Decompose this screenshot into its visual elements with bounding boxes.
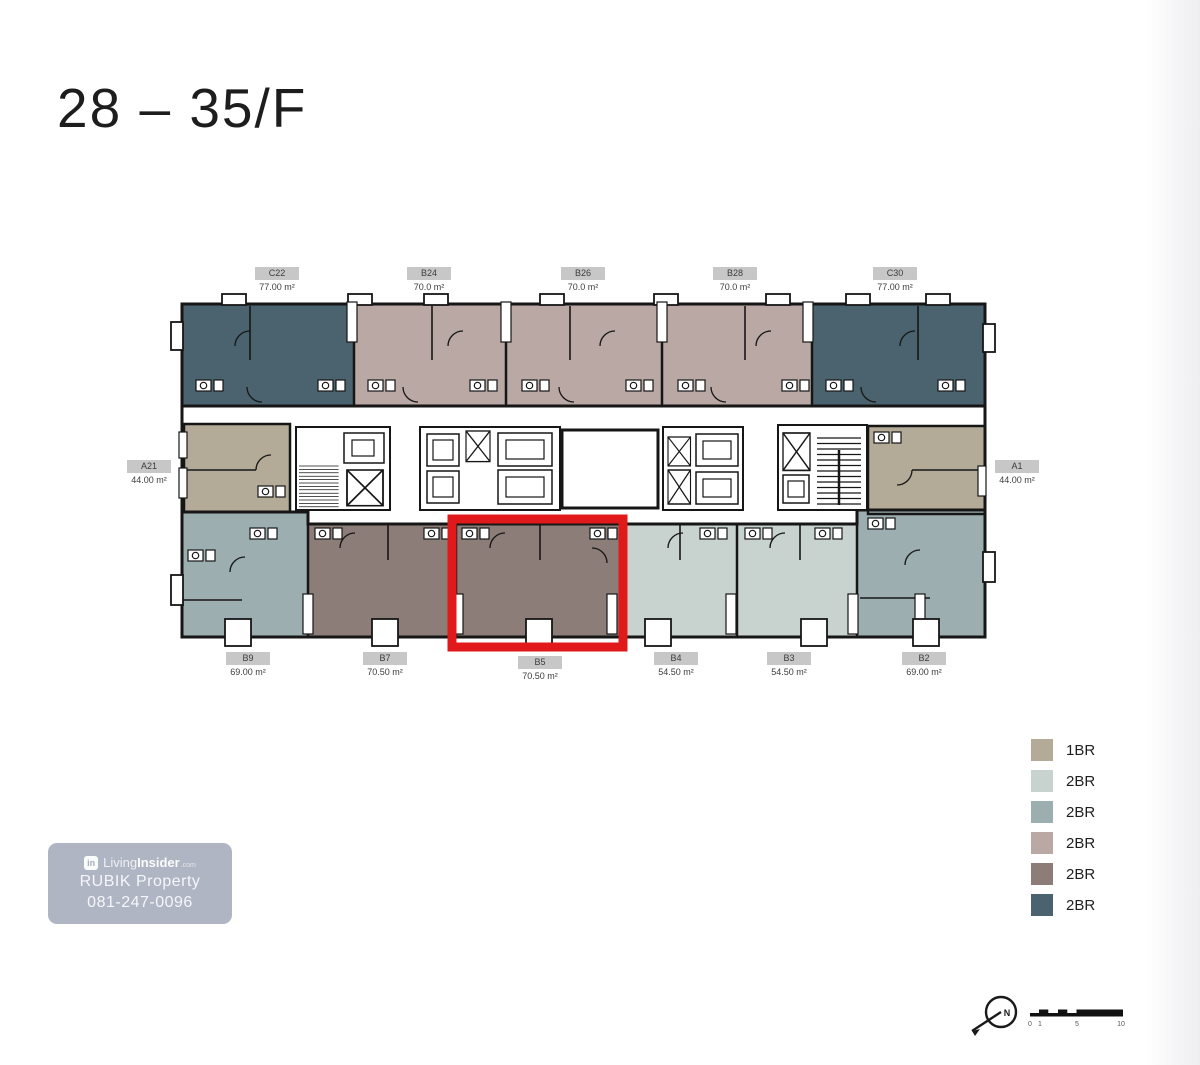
unit-area-text: 70.0 m² <box>561 282 605 292</box>
unit-area-text: 69.00 m² <box>226 667 270 677</box>
unit-label-c22: C22 77.00 m² <box>255 263 299 292</box>
unit-area-text: 77.00 m² <box>255 282 299 292</box>
legend-label: 2BR <box>1066 897 1095 914</box>
unit-id-chip: B26 <box>561 267 605 280</box>
legend-swatch-light <box>1031 770 1053 792</box>
unit-id-chip: B3 <box>767 652 811 665</box>
unit-label-b2: B2 69.00 m² <box>902 648 946 677</box>
unit-label-a1: A1 44.00 m² <box>995 456 1039 485</box>
unit-area-text: 70.0 m² <box>407 282 451 292</box>
unit-label-b28: B28 70.0 m² <box>713 263 757 292</box>
compass-north-label: N <box>1004 1008 1011 1018</box>
watermark: in Living Insider .com RUBIK Property 08… <box>48 843 232 924</box>
legend-row-2br-light: 2BR <box>1031 770 1095 792</box>
unit-label-b3: B3 54.50 m² <box>767 648 811 677</box>
unit-label-b24: B24 70.0 m² <box>407 263 451 292</box>
scale-tick-1: 1 <box>1038 1021 1042 1028</box>
unit-label-b7: B7 70.50 m² <box>363 648 407 677</box>
scale-tick-5: 5 <box>1075 1021 1079 1028</box>
unit-id-chip: C30 <box>873 267 917 280</box>
building-core <box>296 425 867 510</box>
unit-area-text: 70.0 m² <box>713 282 757 292</box>
unit-id-chip: B9 <box>226 652 270 665</box>
legend-row-2br-grayblue: 2BR <box>1031 801 1095 823</box>
unit-label-b5: B5 70.50 m² <box>518 652 562 681</box>
unit-area-text: 54.50 m² <box>767 667 811 677</box>
unit-id-chip: B5 <box>518 656 562 669</box>
legend-row-2br-mauve: 2BR <box>1031 832 1095 854</box>
legend-swatch-grayblue <box>1031 801 1053 823</box>
unit-area-text: 70.50 m² <box>518 671 562 681</box>
unit-region-b3 <box>737 524 857 637</box>
legend-label: 2BR <box>1066 866 1095 883</box>
unit-region-a21 <box>184 424 290 512</box>
livinginsider-logo-icon: in <box>84 856 98 870</box>
legend-label: 2BR <box>1066 773 1095 790</box>
legend-label: 2BR <box>1066 835 1095 852</box>
legend-label: 1BR <box>1066 742 1095 759</box>
unit-id-chip: B4 <box>654 652 698 665</box>
brand-living: Living <box>103 855 137 870</box>
scale-tick-10: 10 <box>1117 1021 1125 1028</box>
legend-row-1br: 1BR <box>1031 739 1095 761</box>
legend-row-2br-slate: 2BR <box>1031 894 1095 916</box>
unit-area-text: 70.50 m² <box>363 667 407 677</box>
scale-tick-0: 0 <box>1028 1021 1032 1028</box>
legend: 1BR 2BR 2BR 2BR 2BR 2BR <box>1031 739 1095 925</box>
unit-area-text: 44.00 m² <box>995 475 1039 485</box>
legend-swatch-slate <box>1031 894 1053 916</box>
brand-tld: .com <box>181 862 196 869</box>
unit-id-chip: A1 <box>995 460 1039 473</box>
unit-label-b4: B4 54.50 m² <box>654 648 698 677</box>
unit-area-text: 54.50 m² <box>654 667 698 677</box>
compass: N <box>972 997 1016 1036</box>
unit-label-b26: B26 70.0 m² <box>561 263 605 292</box>
brand-insider: Insider <box>137 855 180 870</box>
unit-label-b9: B9 69.00 m² <box>226 648 270 677</box>
unit-area-text: 44.00 m² <box>127 475 171 485</box>
watermark-brand: in Living Insider .com <box>84 855 196 870</box>
legend-swatch-beige <box>1031 739 1053 761</box>
unit-id-chip: B2 <box>902 652 946 665</box>
unit-area-text: 77.00 m² <box>873 282 917 292</box>
legend-row-2br-brown: 2BR <box>1031 863 1095 885</box>
legend-swatch-mauve <box>1031 832 1053 854</box>
unit-id-chip: B7 <box>363 652 407 665</box>
unit-id-chip: B28 <box>713 267 757 280</box>
unit-label-a21: A21 44.00 m² <box>127 456 171 485</box>
unit-id-chip: C22 <box>255 267 299 280</box>
legend-label: 2BR <box>1066 804 1095 821</box>
scale-bar: 0 1 5 10 <box>1028 1010 1125 1029</box>
watermark-company: RUBIK Property <box>80 873 201 891</box>
unit-id-chip: B24 <box>407 267 451 280</box>
legend-swatch-brown <box>1031 863 1053 885</box>
unit-label-c30: C30 77.00 m² <box>873 263 917 292</box>
unit-id-chip: A21 <box>127 460 171 473</box>
watermark-phone: 081-247-0096 <box>87 894 193 912</box>
unit-area-text: 69.00 m² <box>902 667 946 677</box>
